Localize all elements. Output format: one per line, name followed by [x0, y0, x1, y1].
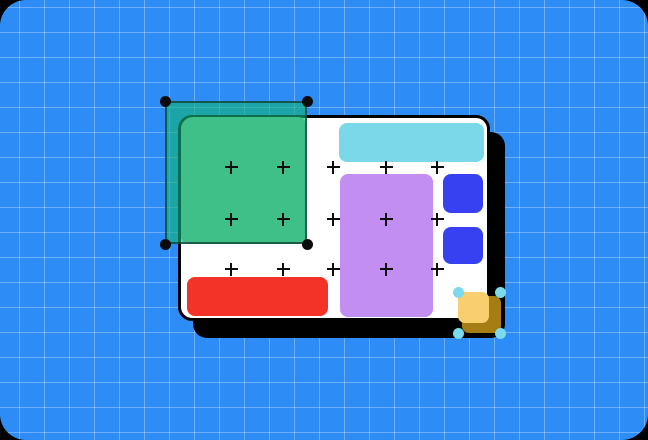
mini-selection-corner-handle[interactable]: [453, 287, 464, 298]
red-bar[interactable]: [187, 277, 328, 316]
plus-mark: [277, 161, 290, 174]
plus-mark: [225, 161, 238, 174]
plus-mark: [225, 263, 238, 276]
plus-mark: [380, 213, 393, 226]
marquee-corner-handle[interactable]: [160, 239, 171, 250]
mini-selection-corner-handle[interactable]: [495, 287, 506, 298]
plus-mark: [327, 263, 340, 276]
marquee-corner-handle[interactable]: [160, 96, 171, 107]
yellow-square[interactable]: [458, 292, 489, 323]
marquee-corner-handle[interactable]: [302, 239, 313, 250]
plus-mark: [327, 213, 340, 226]
plus-mark: [431, 263, 444, 276]
plus-mark: [277, 263, 290, 276]
plus-mark: [380, 161, 393, 174]
mini-selection-corner-handle[interactable]: [495, 328, 506, 339]
plus-mark: [277, 213, 290, 226]
marquee-corner-handle[interactable]: [302, 96, 313, 107]
plus-mark: [431, 213, 444, 226]
plus-mark: [225, 213, 238, 226]
cyan-bar[interactable]: [339, 123, 484, 162]
purple-rectangle[interactable]: [340, 174, 433, 317]
plus-mark: [380, 263, 393, 276]
illustration-scene: [0, 0, 648, 440]
indigo-square-bottom[interactable]: [443, 227, 483, 264]
plus-mark: [327, 161, 340, 174]
indigo-square-top[interactable]: [443, 174, 483, 213]
mini-selection-corner-handle[interactable]: [453, 328, 464, 339]
plus-mark: [431, 161, 444, 174]
